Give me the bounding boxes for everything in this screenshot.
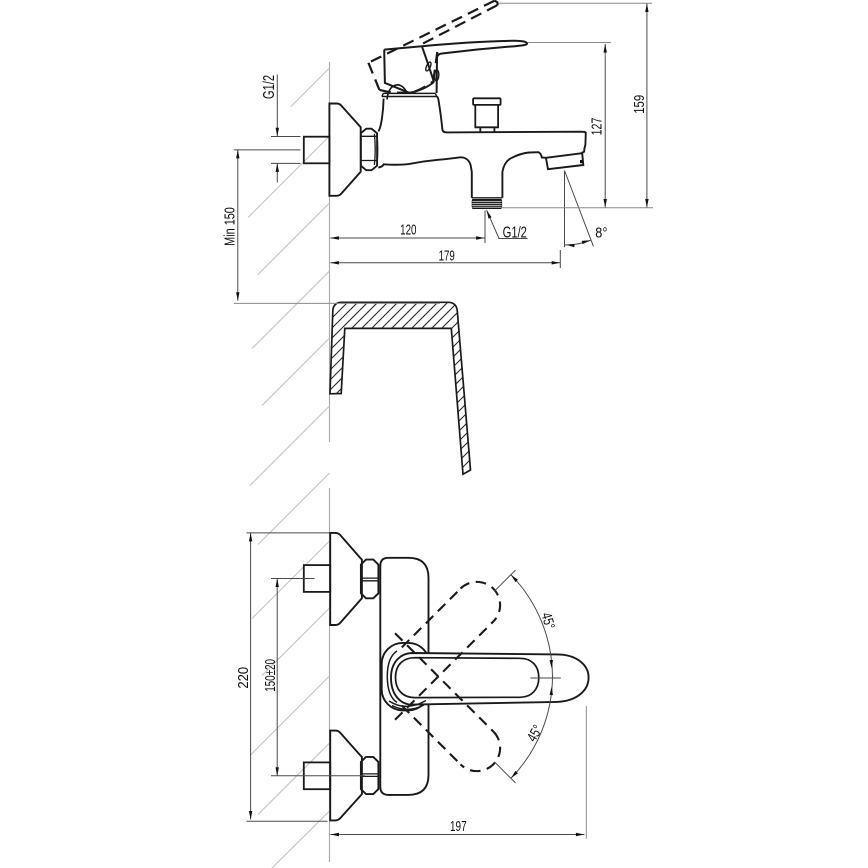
svg-text:G1/2: G1/2 bbox=[503, 224, 527, 241]
svg-text:179: 179 bbox=[439, 247, 455, 263]
svg-text:159: 159 bbox=[631, 95, 648, 114]
svg-text:120: 120 bbox=[400, 222, 416, 238]
svg-text:G1/2: G1/2 bbox=[260, 75, 277, 99]
svg-text:220: 220 bbox=[235, 667, 251, 689]
svg-text:197: 197 bbox=[450, 818, 467, 834]
svg-text:Min 150: Min 150 bbox=[221, 207, 238, 246]
svg-text:8°: 8° bbox=[595, 225, 607, 241]
svg-text:150±20: 150±20 bbox=[262, 659, 278, 692]
svg-text:127: 127 bbox=[589, 118, 605, 136]
